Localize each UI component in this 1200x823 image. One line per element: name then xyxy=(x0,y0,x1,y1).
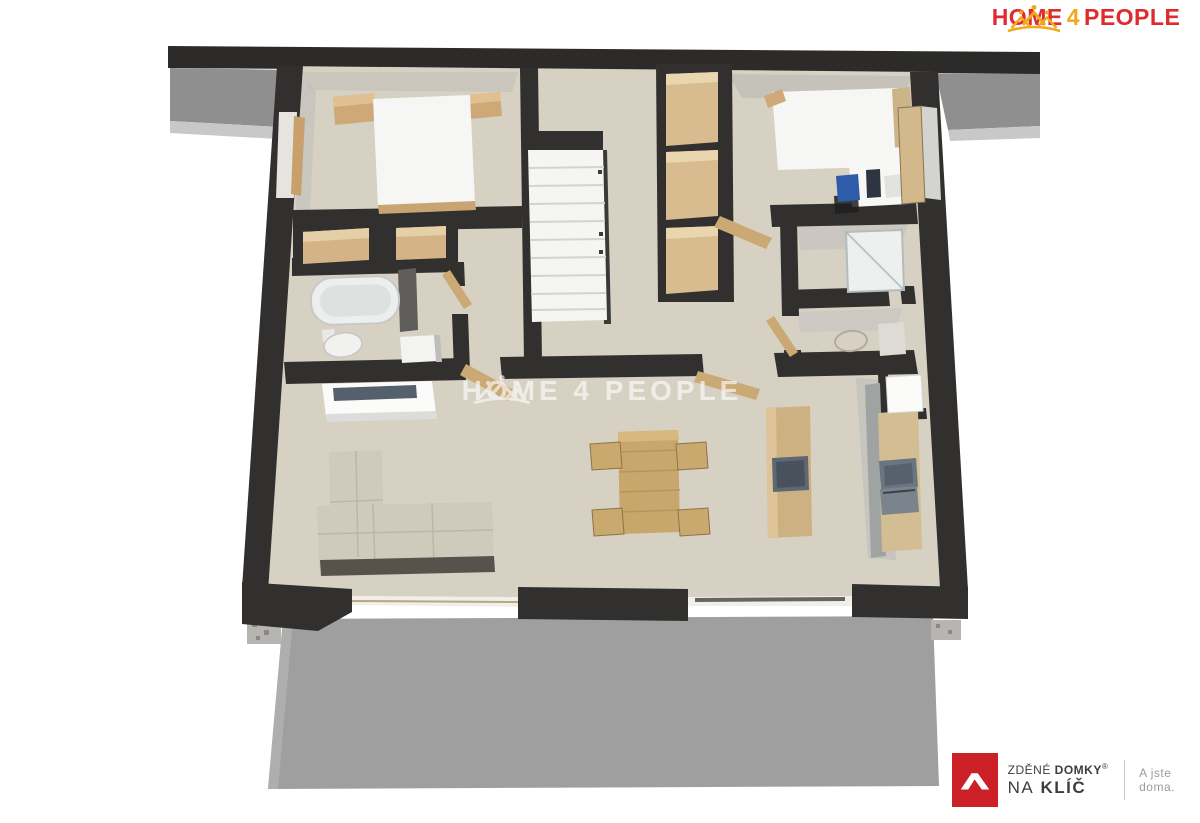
roof-glyph xyxy=(954,763,996,797)
hall-bottom-wall-mid xyxy=(500,354,704,379)
crown-people-icon xyxy=(986,4,1082,34)
builder-line1: ZDĚNÉ DOMKY® xyxy=(1008,762,1109,778)
right-wing-roof xyxy=(936,74,1040,130)
brand-people: PEOPLE xyxy=(1084,4,1180,30)
brand-logo: HOME4PEOPLE xyxy=(986,4,1186,29)
bottom-wall-right xyxy=(852,584,968,619)
double-bed xyxy=(373,95,475,207)
builder-logo-text: ZDĚNÉ DOMKY® NA KLÍČ xyxy=(1008,762,1109,797)
terrace xyxy=(247,616,961,789)
terrace-surface xyxy=(268,616,939,789)
builder-line2: NA KLÍČ xyxy=(1008,778,1109,798)
office-chair xyxy=(836,174,860,202)
monitor xyxy=(866,169,881,198)
left-wing-roof xyxy=(170,68,290,127)
staircase xyxy=(528,150,607,322)
dining-chair xyxy=(676,442,708,470)
floorplan-page: HOME 4 PEOPLE HOME4PEOPLE ZDĚNÉ DOMKY® N… xyxy=(0,0,1200,823)
builder-tagline: A jste doma. xyxy=(1139,766,1200,794)
concrete-block-right xyxy=(931,620,961,640)
floorplan-render xyxy=(0,0,1200,823)
office-wardrobe xyxy=(898,106,925,204)
sink xyxy=(400,335,438,363)
hall-wardrobes xyxy=(666,72,718,294)
builder-logo: ZDĚNÉ DOMKY® NA KLÍČ A jste doma. xyxy=(952,753,1200,807)
dining-chair xyxy=(590,442,622,470)
dining-chair xyxy=(592,508,624,536)
registered-mark: ® xyxy=(1102,762,1108,771)
bottom-wall-mid xyxy=(518,587,688,621)
dining-table xyxy=(618,430,680,534)
dining-chair xyxy=(678,508,710,536)
shower-room xyxy=(846,230,904,292)
house-roof-icon xyxy=(952,753,998,807)
fridge-niche xyxy=(886,375,923,413)
logo-divider xyxy=(1124,760,1125,800)
stairs xyxy=(528,150,607,322)
wc-cabinet xyxy=(878,322,906,356)
stairwell-top-wall xyxy=(533,131,603,152)
